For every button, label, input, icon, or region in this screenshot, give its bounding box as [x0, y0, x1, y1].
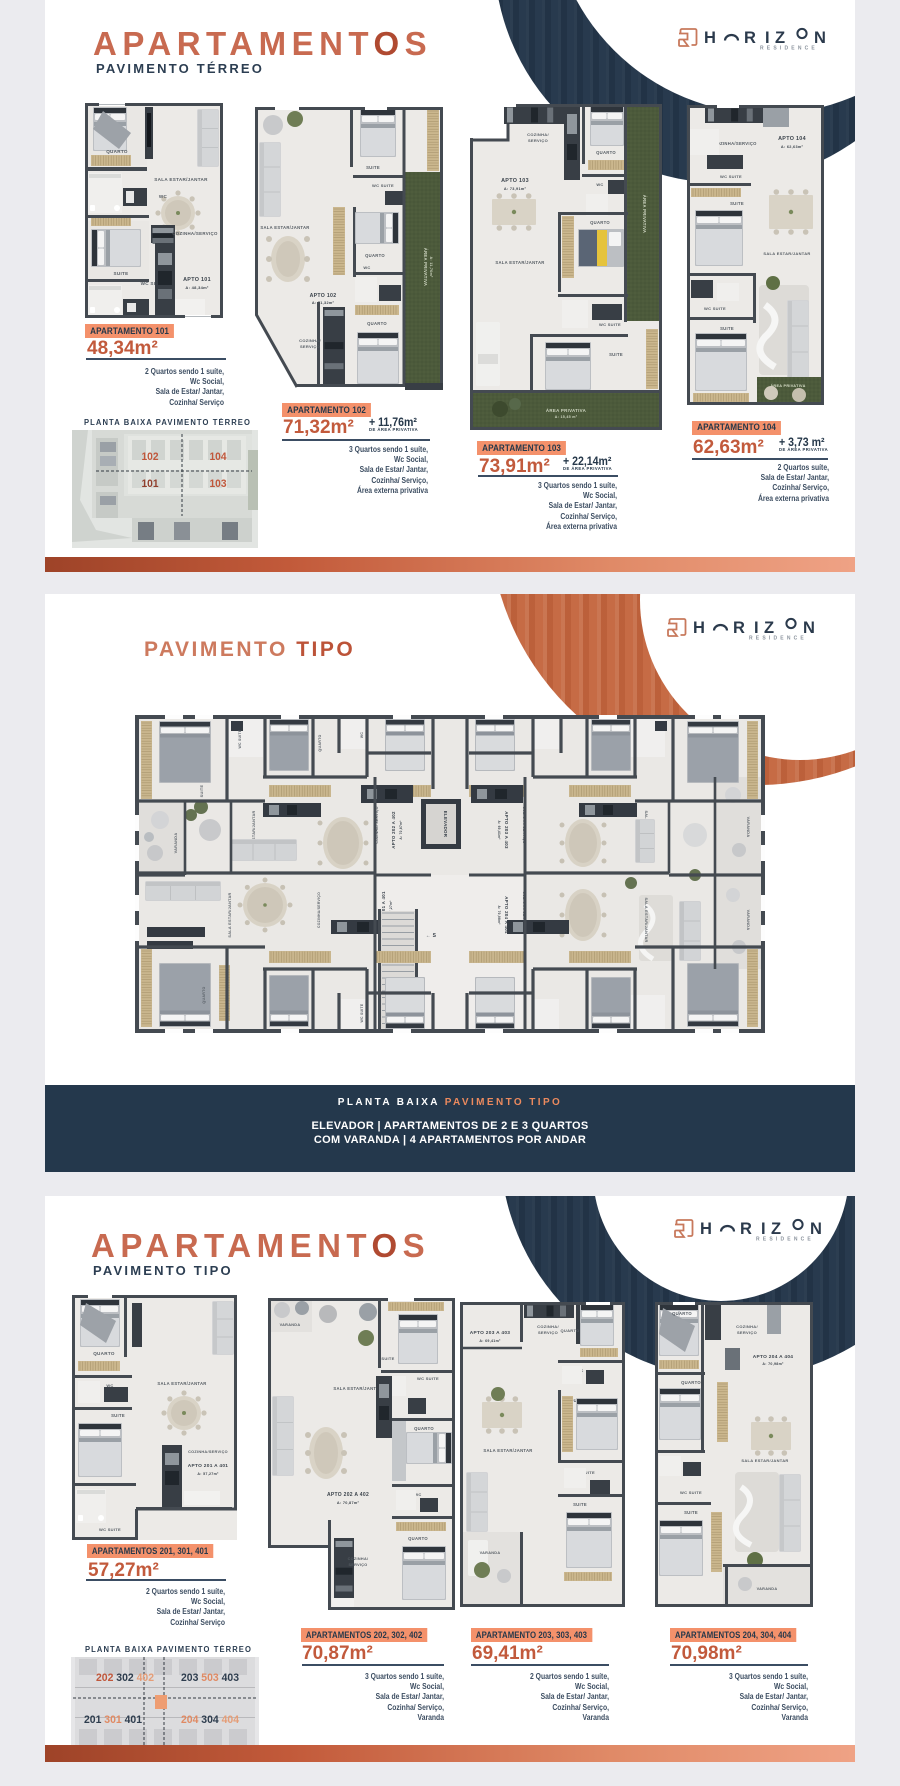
svg-text:H: H: [704, 29, 716, 47]
svg-text:H: H: [700, 1220, 712, 1238]
svg-text:VARANDA: VARANDA: [280, 1323, 301, 1327]
svg-text:A: 69,41m²: A: 69,41m²: [497, 820, 501, 839]
svg-text:SUITE: SUITE: [381, 1356, 394, 1361]
svg-text:A: 15,45 m²: A: 15,45 m²: [555, 415, 578, 419]
svg-text:SERVIÇO: SERVIÇO: [528, 138, 548, 143]
svg-text:RESIDENCE: RESIDENCE: [749, 636, 807, 642]
svg-text:Z: Z: [771, 1220, 781, 1238]
svg-text:SUITE: SUITE: [720, 326, 734, 331]
svg-text:APTO 201 A 401: APTO 201 A 401: [188, 1463, 229, 1469]
svg-text:I: I: [765, 29, 770, 47]
svg-text:102: 102: [142, 451, 159, 463]
svg-text:COZINHA/: COZINHA/: [348, 1557, 369, 1561]
svg-text:SERVIÇO: SERVIÇO: [538, 1330, 558, 1335]
svg-text:APTO 202 A 402: APTO 202 A 402: [327, 1492, 369, 1498]
svg-text:A: 11,76m²: A: 11,76m²: [429, 257, 433, 278]
svg-text:SERVIÇO: SERVIÇO: [737, 1330, 757, 1335]
svg-text:QUARTO: QUARTO: [106, 149, 128, 154]
svg-text:QUARTO: QUARTO: [367, 321, 387, 326]
svg-text:A: 70,98m²: A: 70,98m²: [497, 905, 501, 924]
svg-text:QUARTO: QUARTO: [681, 1380, 701, 1385]
svg-text:I: I: [761, 1220, 766, 1238]
svg-text:A: 73,91m²: A: 73,91m²: [504, 187, 527, 191]
svg-text:103: 103: [210, 478, 227, 490]
svg-text:VARANDA: VARANDA: [174, 833, 178, 854]
svg-text:ÁREA PRIVATIVA: ÁREA PRIVATIVA: [423, 248, 428, 286]
svg-text:Z: Z: [764, 619, 774, 637]
svg-text:QUARTO: QUARTO: [414, 1426, 434, 1431]
svg-text:QUARTO: QUARTO: [365, 253, 385, 258]
svg-text:WC: WC: [159, 194, 168, 199]
svg-text:QUARTO: QUARTO: [202, 986, 206, 1003]
svg-text:VARANDA: VARANDA: [746, 817, 750, 838]
svg-text:RESIDENCE: RESIDENCE: [756, 1237, 814, 1243]
svg-text:R: R: [744, 29, 756, 47]
svg-text:COZINHA/: COZINHA/: [299, 338, 321, 343]
svg-text:VARANDA: VARANDA: [480, 1551, 501, 1555]
svg-text:A: 71,32m²: A: 71,32m²: [312, 301, 335, 305]
svg-text:APTO 104: APTO 104: [778, 136, 806, 142]
svg-text:WC SUITE: WC SUITE: [238, 729, 242, 748]
svg-text:H: H: [693, 619, 705, 637]
svg-text:SALA ESTAR/JANTAR: SALA ESTAR/JANTAR: [495, 260, 544, 265]
svg-text:A: 69,41m²: A: 69,41m²: [479, 1339, 501, 1343]
svg-text:SUITE: SUITE: [366, 165, 380, 170]
svg-text:APTO 204 A 404: APTO 204 A 404: [753, 1354, 794, 1360]
svg-text:SALA ESTAR/JANTAR: SALA ESTAR/JANTAR: [154, 177, 208, 182]
svg-text:APTO 202 A 402: APTO 202 A 402: [391, 811, 396, 849]
svg-text:QUARTO: QUARTO: [408, 1536, 428, 1541]
svg-text:COZINHA/SERVIÇO: COZINHA/SERVIÇO: [188, 1450, 228, 1454]
svg-text:SALA ESTAR/JANTAR: SALA ESTAR/JANTAR: [260, 225, 309, 230]
svg-text:COZINHA/: COZINHA/: [736, 1324, 758, 1329]
svg-text:COZINHA/SERVIÇO: COZINHA/SERVIÇO: [317, 892, 321, 928]
svg-text:204 304 404: 204 304 404: [181, 1714, 240, 1726]
svg-text:COZINHA/: COZINHA/: [527, 132, 549, 137]
svg-text:R: R: [740, 1220, 752, 1238]
svg-text:COZINHA/SERVIÇO: COZINHA/SERVIÇO: [172, 231, 218, 236]
svg-text:VARANDA: VARANDA: [757, 1587, 778, 1591]
svg-text:A: 70,98m²: A: 70,98m²: [762, 1362, 784, 1366]
svg-text:QUARTO: QUARTO: [590, 220, 610, 225]
svg-text:WC SUITE: WC SUITE: [680, 1490, 702, 1495]
svg-text:203 503 403: 203 503 403: [181, 1672, 239, 1684]
svg-text:Z: Z: [775, 29, 785, 47]
svg-text:RESIDENCE: RESIDENCE: [760, 46, 818, 52]
svg-text:ELEVADOR: ELEVADOR: [443, 811, 448, 838]
svg-text:QUARTO: QUARTO: [596, 150, 616, 155]
svg-text:ÁREA PRIVATIVA: ÁREA PRIVATIVA: [642, 195, 647, 233]
svg-text:A: 57,27m²: A: 57,27m²: [197, 1472, 219, 1476]
svg-text:WC SUITE: WC SUITE: [372, 183, 394, 188]
svg-text:COZINHA/SERVIÇO: COZINHA/SERVIÇO: [713, 141, 757, 146]
svg-text:WC: WC: [596, 182, 603, 187]
svg-text:WC SUITE: WC SUITE: [599, 322, 621, 327]
svg-text:WC: WC: [360, 732, 364, 739]
svg-text:WC SUITE: WC SUITE: [704, 306, 726, 311]
svg-text:I: I: [754, 619, 759, 637]
svg-text:SERVIÇO: SERVIÇO: [300, 344, 320, 349]
svg-text:SALA ESTAR/JANTAR: SALA ESTAR/JANTAR: [644, 897, 648, 942]
svg-text:WC SUITE: WC SUITE: [720, 174, 742, 179]
svg-text:APTO 102: APTO 102: [310, 293, 337, 299]
svg-text:A: 70,87m²: A: 70,87m²: [337, 1501, 360, 1505]
svg-text:101: 101: [142, 478, 159, 490]
svg-text:VARANDA: VARANDA: [746, 910, 750, 931]
svg-text:QUARTO: QUARTO: [560, 1328, 579, 1333]
svg-text:QUARTO: QUARTO: [318, 734, 322, 751]
svg-text:SALA ESTAR/JANTAR: SALA ESTAR/JANTAR: [741, 1458, 788, 1463]
svg-text:ÁREA PRIVATIVA: ÁREA PRIVATIVA: [546, 408, 587, 413]
svg-text:201 301 401: 201 301 401: [84, 1714, 142, 1726]
svg-text:QUARTO: QUARTO: [93, 1351, 115, 1356]
svg-text:WC SUITE: WC SUITE: [360, 1003, 364, 1022]
svg-text:104: 104: [210, 451, 228, 463]
svg-text:R: R: [733, 619, 745, 637]
svg-text:SALA ESTAR/JANTAR: SALA ESTAR/JANTAR: [157, 1381, 206, 1386]
svg-text:APTO 203 A 403: APTO 203 A 403: [504, 811, 509, 849]
svg-text:SUITE: SUITE: [200, 784, 204, 797]
svg-text:N: N: [814, 29, 826, 47]
svg-text:COZINHA/: COZINHA/: [537, 1324, 559, 1329]
svg-text:WC: WC: [363, 265, 370, 270]
svg-text:WC SUITE: WC SUITE: [99, 1527, 121, 1532]
svg-text:SUITE: SUITE: [113, 271, 128, 276]
svg-text:N: N: [803, 619, 815, 637]
svg-text:202 302 402: 202 302 402: [96, 1672, 154, 1684]
svg-text:APTO 101: APTO 101: [183, 277, 211, 283]
svg-text:QUARTO: QUARTO: [672, 1311, 692, 1316]
svg-text:SALA ESTAR/JANTAR: SALA ESTAR/JANTAR: [483, 1448, 532, 1453]
svg-text:A: 62,63m²: A: 62,63m²: [781, 145, 804, 149]
svg-text:SUITE: SUITE: [684, 1510, 698, 1515]
svg-text:SALA ESTAR/JANTAR: SALA ESTAR/JANTAR: [228, 892, 232, 937]
svg-text:← S: ← S: [426, 933, 437, 939]
svg-text:SERVIÇO: SERVIÇO: [348, 1563, 367, 1567]
svg-text:SUITE: SUITE: [111, 1413, 125, 1418]
svg-text:SALA ESTAR/JANTAR: SALA ESTAR/JANTAR: [333, 1386, 382, 1391]
svg-text:APTO 203 A 403: APTO 203 A 403: [470, 1330, 511, 1336]
svg-text:SUITE: SUITE: [730, 201, 744, 206]
svg-text:A: 70,87m²: A: 70,87m²: [399, 820, 403, 839]
svg-text:N: N: [810, 1220, 822, 1238]
svg-text:SUITE: SUITE: [609, 352, 623, 357]
svg-text:WC SUITE: WC SUITE: [417, 1376, 439, 1381]
svg-text:A: 48,34m²: A: 48,34m²: [185, 285, 209, 290]
svg-text:ÁREA PRIVATIVA: ÁREA PRIVATIVA: [770, 383, 805, 388]
svg-text:SUITE: SUITE: [573, 1502, 587, 1507]
svg-text:APTO 103: APTO 103: [501, 178, 529, 184]
svg-text:SALA ESTAR/JANTAR: SALA ESTAR/JANTAR: [763, 251, 810, 256]
